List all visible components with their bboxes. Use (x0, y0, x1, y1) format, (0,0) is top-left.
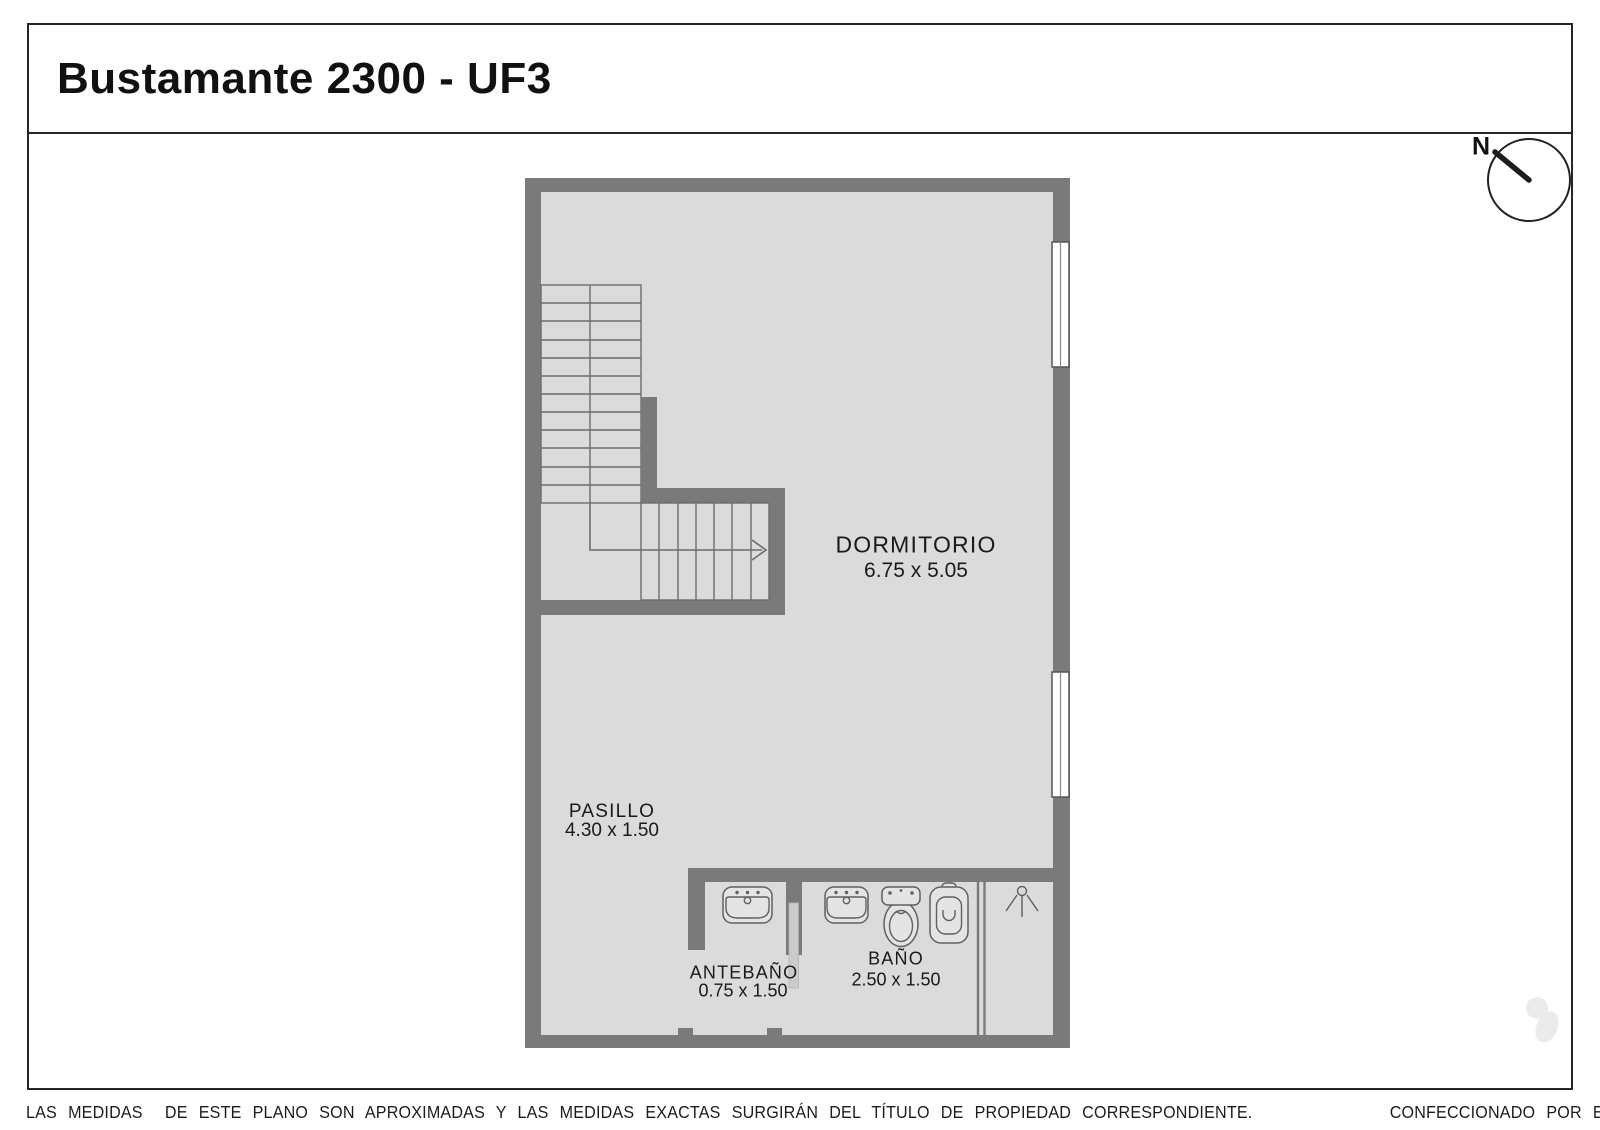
north-label: N (1472, 133, 1490, 162)
stair-stub-wall (641, 397, 657, 488)
antebano-left-wall (688, 882, 705, 950)
sink-icon-bano (825, 887, 868, 923)
disclaimer-text: LAS MEDIDAS DE ESTE PLANO SON APROXIMADA… (26, 1102, 1252, 1123)
room-dims-dormitorio: 6.75 x 5.05 (864, 559, 968, 583)
watermark-blob (1526, 997, 1563, 1046)
credit-text: CONFECCIONADO POR ESTUDIO NARTEX (1390, 1102, 1600, 1123)
bathroom-top-wall (688, 868, 1053, 882)
footer: LAS MEDIDAS DE ESTE PLANO SON APROXIMADA… (26, 1102, 1574, 1123)
stair-right-wall (769, 488, 785, 615)
window-icon-upper (1052, 242, 1069, 367)
wall-bottom (525, 1035, 1070, 1048)
room-dims-antebano: 0.75 x 1.50 (698, 981, 787, 1002)
doorway-stub-left (678, 1028, 693, 1036)
window-icon-lower (1052, 672, 1069, 797)
room-label-dormitorio: DORMITORIO (835, 532, 996, 559)
wall-left (525, 178, 541, 1048)
floor-plan-page: Bustamante 2300 - UF3 (0, 0, 1600, 1130)
sink-icon-antebano (723, 887, 772, 923)
compass (1488, 139, 1570, 221)
room-dims-pasillo: 4.30 x 1.50 (565, 820, 659, 842)
stair-mid-wall (641, 488, 785, 503)
floor-plan-drawing (0, 0, 1600, 1130)
bidet-icon (882, 887, 920, 947)
room-dims-bano: 2.50 x 1.50 (851, 970, 940, 991)
wall-top (525, 178, 1070, 192)
toilet-icon (930, 883, 968, 943)
stair-bottom-wall (541, 600, 785, 615)
doorway-stub-right (767, 1028, 782, 1036)
room-label-bano: BAÑO (868, 949, 924, 970)
